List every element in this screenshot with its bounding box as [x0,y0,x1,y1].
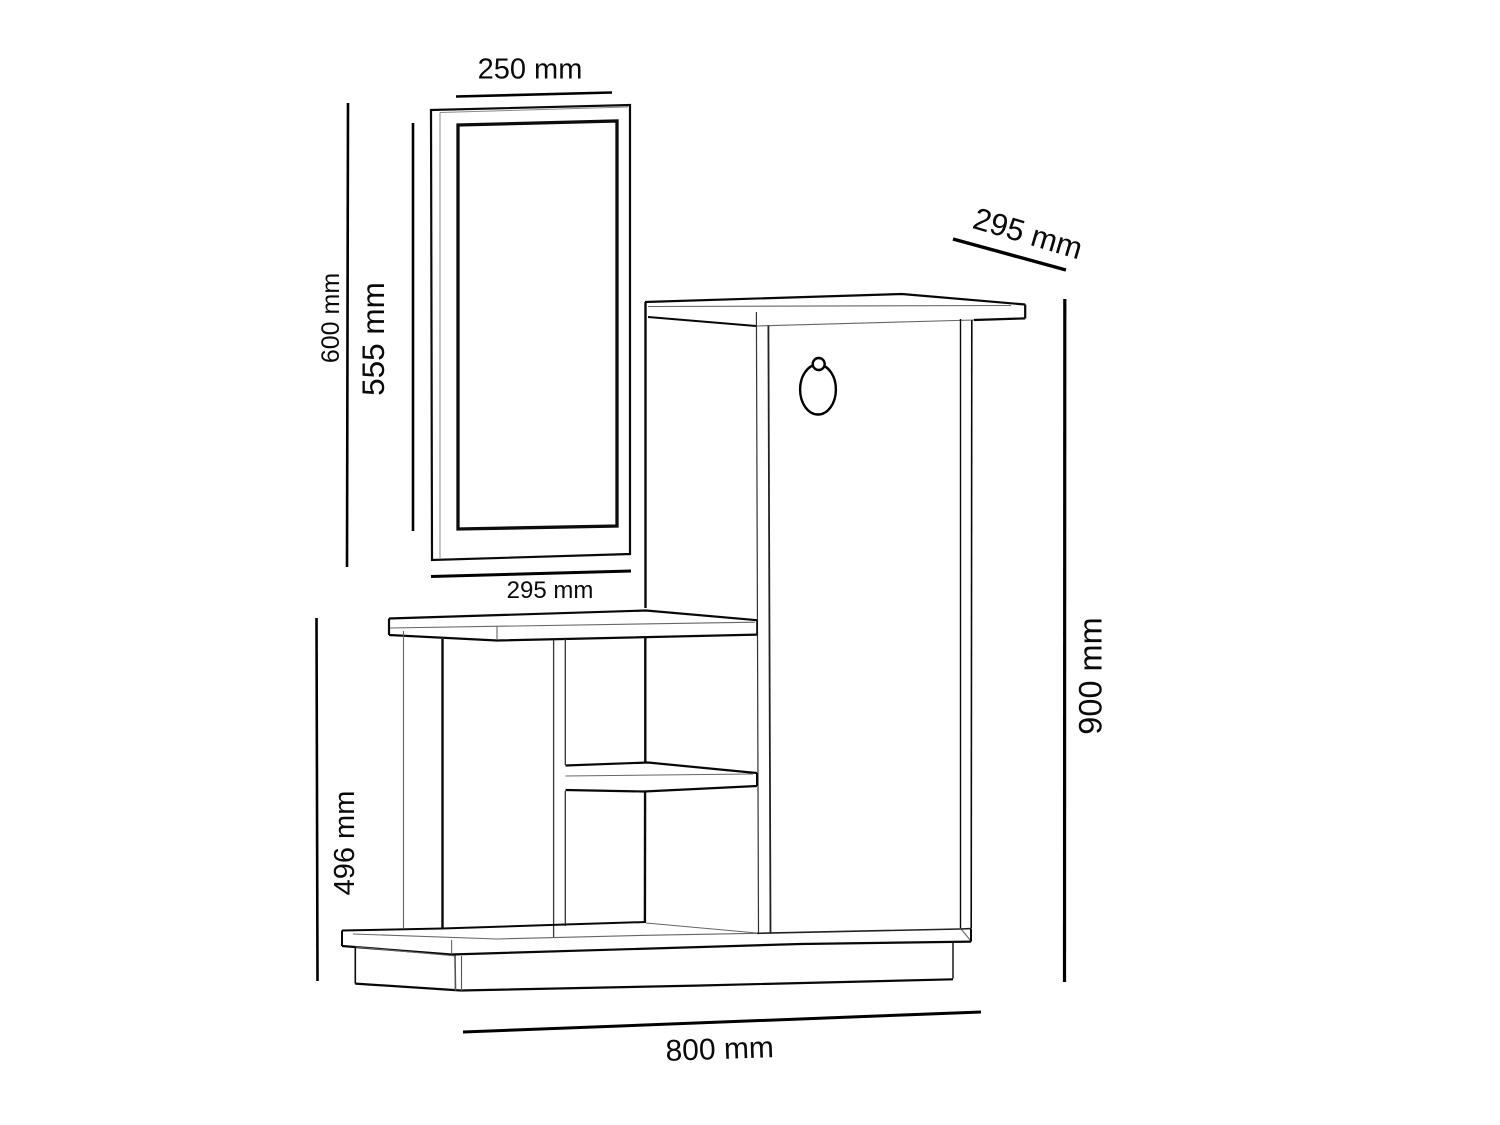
svg-text:250 mm: 250 mm [478,54,583,86]
svg-text:600 mm: 600 mm [317,273,345,363]
svg-text:555 mm: 555 mm [355,282,391,396]
svg-text:900 mm: 900 mm [1073,617,1109,734]
svg-text:496 mm: 496 mm [329,791,361,896]
svg-text:800 mm: 800 mm [665,1031,774,1068]
svg-text:295 mm: 295 mm [507,577,594,604]
svg-text:295 mm: 295 mm [969,201,1086,266]
